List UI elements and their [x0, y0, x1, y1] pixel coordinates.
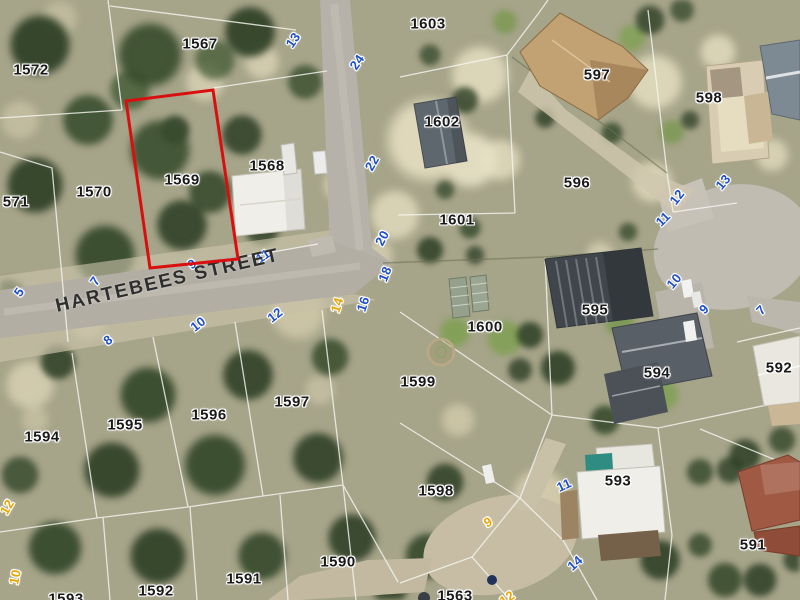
highlight-layer — [0, 0, 800, 600]
map-canvas[interactable]: 1572156716031602597598596160115681570571… — [0, 0, 800, 600]
highlighted-parcel-outline[interactable] — [126, 90, 238, 268]
